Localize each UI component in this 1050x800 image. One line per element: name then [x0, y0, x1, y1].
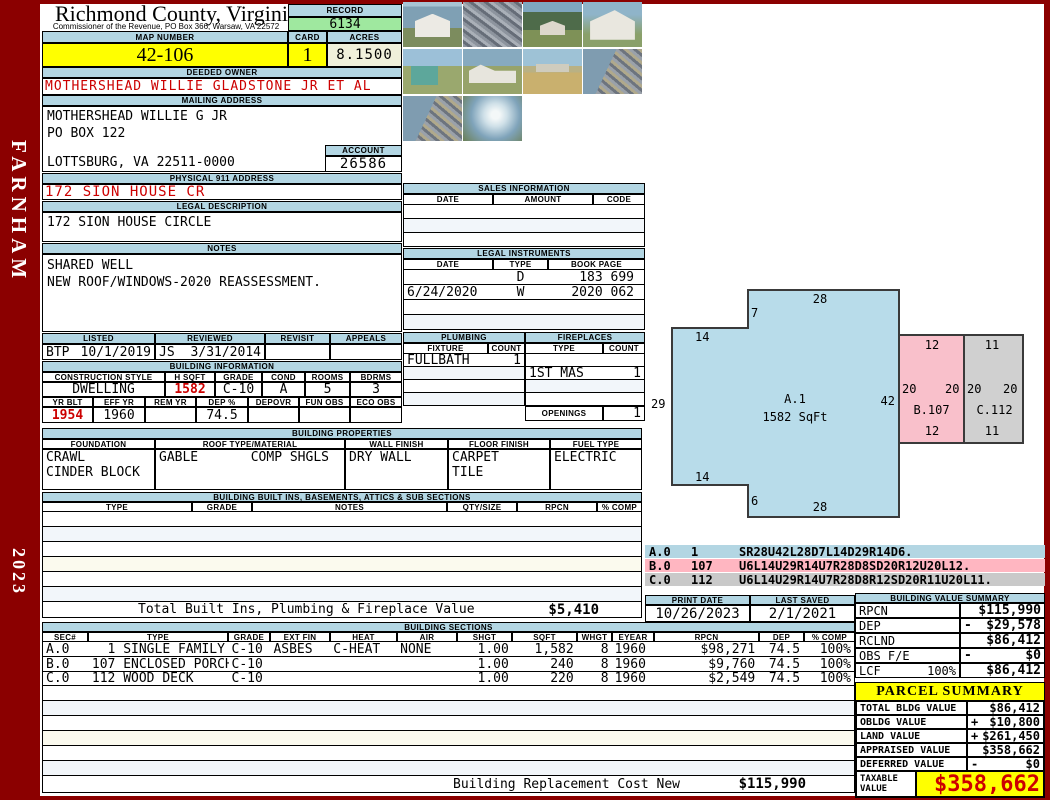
bvs-value: -$29,578 [960, 618, 1045, 633]
li-bookpage: 183 699 [548, 270, 644, 285]
replacement-cost-value: $115,990 [739, 776, 806, 792]
card-value: 1 [288, 43, 327, 67]
built-ins-title: BUILDING BUILT INS, BASEMENTS, ATTICS & … [42, 492, 642, 502]
building-section-row: C.0 112 WOOD DECK C-10 1.00 220 8 1960 $… [42, 672, 855, 686]
bs-rpcn: $98,271 [654, 642, 759, 657]
foundation-line-1: CRAWL [46, 450, 85, 465]
built-ins-total-row: Total Built Ins, Plumbing & Fireplace Va… [42, 602, 642, 618]
listed-header: LISTED [42, 333, 155, 344]
bs-sec-header: SEC# [42, 632, 88, 642]
sales-amount-header: AMOUNT [493, 194, 593, 205]
li-date-header: DATE [403, 259, 493, 270]
building-section-empty-row [42, 701, 855, 716]
notes-box: SHARED WELL NEW ROOF/WINDOWS-2020 REASSE… [42, 254, 402, 332]
code-type: 1 [691, 545, 739, 559]
code-sec: C.0 [649, 573, 691, 587]
photo-thumbnail-white-house-front[interactable] [463, 49, 522, 94]
wall-finish-header: WALL FINISH [345, 439, 448, 449]
sketch-code-row-a: A.0 1 SR28U42L28D7L14D29R14D6. [645, 545, 1045, 558]
sketch-code-row-c: C.0 112 U6L14U29R14U7R28D8R12SD20R11U20L… [645, 573, 1045, 586]
dep-pct-header: DEP % [196, 397, 248, 407]
legal-description-header: LEGAL DESCRIPTION [42, 201, 402, 212]
reviewed-date: 3/31/2014 [191, 345, 261, 360]
bs-shgt: 1.00 [457, 642, 512, 657]
code-sec: A.0 [649, 545, 691, 559]
depovr-value [248, 407, 299, 423]
photo-thumbnail-field-and-house[interactable] [523, 49, 582, 94]
fireplace-row [525, 393, 645, 406]
bs-comp: 100% [803, 672, 854, 686]
built-ins-empty-row [42, 587, 642, 602]
reviewed-by: JS [159, 345, 175, 360]
print-date-value: 10/26/2023 [645, 605, 750, 622]
bvs-amount: $29,578 [986, 618, 1041, 633]
revisit-value [265, 344, 330, 360]
plumbing-row [403, 380, 525, 393]
fireplace-row: 1ST MAS 1 [525, 367, 645, 380]
fireplace-type-header: TYPE [525, 343, 603, 354]
print-date-header: PRINT DATE [645, 595, 750, 605]
built-ins-qty-header: QTY/SIZE [447, 502, 517, 512]
mailing-line-1: MOTHERSHEAD WILLIE G JR [43, 107, 401, 124]
appeals-header: APPEALS [330, 333, 402, 344]
sales-title: SALES INFORMATION [403, 183, 645, 194]
parcel-value: $86,412 [967, 701, 1044, 715]
card-header: CARD [288, 31, 327, 43]
parcel-sign: + [971, 729, 978, 743]
building-properties-header: BUILDING PROPERTIES [42, 428, 642, 439]
notes-line-1: SHARED WELL [43, 255, 401, 273]
dim-a-top: 28 [805, 292, 835, 306]
dim-a-left: 29 [651, 397, 665, 411]
parcel-amount: $0 [1026, 757, 1040, 771]
bs-eyear: 1960 [612, 642, 654, 657]
sketch-c-name: C.112 [967, 403, 1022, 417]
replacement-cost-label: Building Replacement Cost New [453, 777, 680, 792]
dim-a-bottom: 28 [805, 500, 835, 514]
building-sections-title: BUILDING SECTIONS [42, 622, 855, 632]
bs-dep: 74.5 [758, 642, 803, 657]
reviewed-value: JS 3/31/2014 [155, 344, 265, 360]
bs-grade-header: GRADE [228, 632, 270, 642]
parcel-amount: $10,800 [989, 715, 1040, 729]
legal-instruments-header-row: DATE TYPE BOOK PAGE [403, 259, 645, 270]
plumbing-row [403, 367, 525, 380]
bvs-sign: - [964, 648, 972, 663]
bvs-amount: $0 [1025, 648, 1041, 663]
bvs-extra: 100% [927, 664, 956, 678]
code-type: 112 [691, 573, 739, 587]
bs-dep: 74.5 [758, 672, 803, 686]
photo-thumbnail-shoreline-riprap[interactable] [403, 96, 462, 141]
bvs-amount: $86,412 [986, 663, 1041, 678]
li-bookpage: 2020 062 [548, 285, 644, 300]
parcel-summary-title: PARCEL SUMMARY [856, 683, 1044, 701]
floor-finish-value: CARPET TILE [448, 449, 550, 490]
fun-obs-header: FUN OBS [299, 397, 350, 407]
sales-date-header: DATE [403, 194, 493, 205]
fuel-type-header: FUEL TYPE [550, 439, 642, 449]
bvs-label-text: LCF [859, 664, 881, 678]
roof-type: GABLE [159, 450, 198, 465]
fireplace-count-header: COUNT [603, 343, 645, 354]
parcel-value: $358,662 [967, 743, 1044, 757]
building-info-header-row-2: YR BLT EFF YR REM YR DEP % DEPOVR FUN OB… [42, 397, 402, 407]
bs-sqft: 220 [512, 672, 577, 686]
legal-instrument-row: D 183 699 [403, 270, 645, 285]
bs-eyear-header: EYEAR [612, 632, 654, 642]
photo-thumbnail-riprap-pile[interactable] [463, 2, 522, 47]
taxable-value-amount: $358,662 [916, 771, 1044, 797]
li-date: 6/24/2020 [404, 285, 493, 300]
dim-b-top: 12 [917, 338, 947, 352]
rooms-header: ROOMS [305, 372, 350, 382]
dim-a-ext-bottom: 14 [695, 470, 709, 484]
parcel-label: TOTAL BLDG VALUE [856, 701, 967, 715]
plumbing-count-header: COUNT [488, 343, 525, 354]
floor-line-1: CARPET [452, 450, 499, 465]
bs-dep-header: DEP [759, 632, 804, 642]
bs-whgt: 8 [577, 657, 612, 672]
building-info-header-row-1: CONSTRUCTION STYLE H SQFT GRADE COND ROO… [42, 372, 402, 382]
hsqft-header: H SQFT [165, 372, 215, 382]
dim-c-bottom: 11 [977, 424, 1007, 438]
bs-grade: C-10 [229, 642, 271, 657]
plumbing-count: 1 [488, 354, 524, 367]
code-path: U6L14U29R14U7R28D8SD20R12U20L12. [739, 559, 970, 573]
built-ins-empty-row [42, 527, 642, 542]
cond-header: COND [262, 372, 305, 382]
bvs-value: $86,412 [960, 663, 1045, 678]
bvs-label-text: RPCN [859, 604, 888, 618]
built-ins-empty-row [42, 542, 642, 557]
yr-blt-value: 1954 [42, 407, 93, 423]
appeals-value [330, 344, 402, 360]
bs-rpcn-header: RPCN [654, 632, 759, 642]
notes-header: NOTES [42, 243, 402, 254]
bs-whgt: 8 [577, 672, 612, 686]
fixture-header: FIXTURE [403, 343, 488, 354]
bs-shgt: 1.00 [457, 672, 512, 686]
built-ins-notes-header: NOTES [252, 502, 447, 512]
building-section-empty-row [42, 731, 855, 746]
roof-value: GABLE COMP SHGLS [155, 449, 345, 490]
bvs-label: RPCN [855, 603, 960, 618]
plumbing-fixture: FULLBATH [404, 354, 488, 367]
bs-shgt: 1.00 [457, 657, 512, 672]
rooms-value: 5 [305, 382, 350, 397]
li-type-header: TYPE [493, 259, 548, 270]
dim-c-right: 20 [1003, 382, 1017, 396]
record-header: RECORD [288, 4, 402, 17]
built-ins-total-label: Total Built Ins, Plumbing & Fireplace Va… [138, 602, 475, 617]
bs-whgt: 8 [577, 642, 612, 657]
bvs-value: -$0 [960, 648, 1045, 663]
plumbing-title: PLUMBING [403, 332, 525, 343]
listed-value: BTP 10/1/2019 [42, 344, 155, 360]
dep-pct-value: 74.5 [196, 407, 248, 423]
building-sections-header-row: SEC# TYPE GRADE EXT FIN HEAT AIR SHGT SQ… [42, 632, 855, 642]
eco-obs-header: ECO OBS [350, 397, 402, 407]
grade-value: C-10 [215, 382, 262, 397]
parcel-sign: - [971, 757, 978, 771]
bs-rpcn: $2,549 [654, 672, 759, 686]
account-header: ACCOUNT [325, 145, 402, 156]
last-saved-header: LAST SAVED [750, 595, 855, 605]
openings-row: OPENINGS 1 [525, 406, 645, 421]
dim-b-left: 20 [902, 382, 916, 396]
fun-obs-value [299, 407, 350, 423]
legal-instrument-row: 6/24/2020 W 2020 062 [403, 285, 645, 300]
building-section-empty-row [42, 686, 855, 701]
legal-description-value: 172 SION HOUSE CIRCLE [43, 213, 401, 230]
li-type: D [493, 270, 548, 285]
bs-sqft: 240 [512, 657, 577, 672]
li-bookpage-header: BOOK PAGE [548, 259, 645, 270]
parcel-label: LAND VALUE [856, 729, 967, 743]
bs-extfin: ASBES [270, 642, 330, 657]
built-ins-empty-row [42, 512, 642, 527]
replacement-cost-row: Building Replacement Cost New $115,990 [42, 776, 855, 793]
grade-header: GRADE [215, 372, 262, 382]
bvs-value: $86,412 [960, 633, 1045, 648]
wall-finish-value: DRY WALL [345, 449, 448, 490]
dim-c-top: 11 [977, 338, 1007, 352]
photo-thumbnail-white-building-gable[interactable] [583, 2, 642, 47]
review-value-row: BTP 10/1/2019 JS 3/31/2014 [42, 344, 402, 360]
sales-empty-row [403, 233, 645, 247]
built-ins-type-header: TYPE [42, 502, 192, 512]
dim-b-right: 20 [945, 382, 959, 396]
bs-sqft: 1,582 [512, 642, 577, 657]
photo-thumbnail-teal-shed[interactable] [403, 49, 462, 94]
physical-address-header: PHYSICAL 911 ADDRESS [42, 173, 402, 184]
bvs-amount: $115,990 [978, 603, 1041, 618]
notes-line-2: NEW ROOF/WINDOWS-2020 REASSESSMENT. [43, 273, 401, 290]
building-information-header: BUILDING INFORMATION [42, 361, 402, 372]
bs-eyear: 1960 [612, 657, 654, 672]
bvs-label: RCLND [855, 633, 960, 648]
bdrms-value: 3 [350, 382, 402, 397]
sketch-a-sqft: 1582 SqFt [745, 410, 845, 424]
built-ins-grade-header: GRADE [192, 502, 252, 512]
bs-type-header: TYPE [88, 632, 228, 642]
parcel-value: +$261,450 [967, 729, 1044, 743]
print-info-value-row: 10/26/2023 2/1/2021 [645, 605, 855, 622]
roof-material: COMP SHGLS [251, 450, 329, 465]
building-section-empty-row [42, 746, 855, 761]
sales-header-row: DATE AMOUNT CODE [403, 194, 645, 205]
building-info-value-row-1: DWELLING 1582 C-10 A 5 3 [42, 382, 402, 397]
legal-description-box: 172 SION HOUSE CIRCLE [42, 212, 402, 242]
sales-code-header: CODE [593, 194, 645, 205]
physical-address-value: 172 SION HOUSE CR [42, 184, 402, 200]
deeded-owner-header: DEEDED OWNER [42, 67, 402, 78]
legal-instrument-row [403, 315, 645, 330]
roof-header: ROOF TYPE/MATERIAL [155, 439, 345, 449]
sketch-a-name: A.1 [765, 392, 825, 406]
fuel-type-value: ELECTRIC [550, 449, 642, 490]
fireplace-row [525, 354, 645, 367]
map-number-value: 42-106 [42, 43, 288, 67]
plumbing-row [403, 393, 525, 406]
building-section-row: A.0 1 SINGLE FAMILY C-10 ASBES C-HEAT NO… [42, 642, 855, 657]
floor-line-2: TILE [452, 465, 483, 480]
bvs-label: OBS F/E [855, 648, 960, 663]
last-saved-value: 2/1/2021 [750, 605, 855, 622]
fireplaces-title: FIREPLACES [525, 332, 645, 343]
sales-empty-row [403, 219, 645, 233]
property-record-card: { "frame": {"district": "FARNHAM", "year… [0, 0, 1050, 800]
sales-empty-row [403, 205, 645, 219]
rem-yr-value [145, 407, 196, 423]
building-info-value-row-2: 1954 1960 74.5 [42, 407, 402, 423]
bs-type: 107 ENCLOSED PORCH [89, 657, 229, 672]
district-label: FARNHAM [6, 140, 31, 350]
built-ins-total-value: $5,410 [548, 602, 599, 618]
bs-extfin-header: EXT FIN [270, 632, 330, 642]
photo-grid [403, 2, 645, 141]
foundation-header: FOUNDATION [42, 439, 155, 449]
bs-heat: C-HEAT [330, 642, 397, 657]
bs-comp-header: % COMP [804, 632, 855, 642]
plumbing-row: FULLBATH 1 [403, 354, 525, 367]
code-type: 107 [691, 559, 739, 573]
listed-by: BTP [46, 345, 69, 360]
legal-instruments-title: LEGAL INSTRUMENTS [403, 248, 645, 259]
bs-heat-header: HEAT [330, 632, 397, 642]
yr-blt-header: YR BLT [42, 397, 93, 407]
sketch-b-name: B.107 [903, 403, 960, 417]
county-subtitle: Commissioner of the Revenue, PO Box 366,… [44, 22, 288, 31]
bdrms-header: BDRMS [350, 372, 402, 382]
bvs-amount: $86,412 [986, 633, 1041, 648]
openings-value: 1 [603, 406, 645, 421]
bvs-label: DEP [855, 618, 960, 633]
photo-thumbnail-waterfront-dock[interactable] [463, 96, 522, 141]
bs-sec: B.0 [43, 657, 89, 672]
mailing-line-2: PO BOX 122 [43, 124, 401, 141]
bs-shgt-header: SHGT [457, 632, 512, 642]
bs-whgt-header: WHGT [577, 632, 612, 642]
bvs-sign: - [964, 618, 972, 633]
building-properties-header-row: FOUNDATION ROOF TYPE/MATERIAL WALL FINIS… [42, 439, 642, 449]
photo-thumbnail-shoreline-riprap[interactable] [583, 49, 642, 94]
cond-value: A [262, 382, 305, 397]
parcel-amount: $358,662 [982, 743, 1040, 757]
parcel-sign: + [971, 715, 978, 729]
dim-a-notch-bottom: 6 [751, 494, 758, 508]
parcel-amount: $86,412 [989, 701, 1040, 715]
built-ins-comp-header: % COMP [597, 502, 642, 512]
fireplace-count: 1 [603, 367, 644, 380]
bvs-title: BUILDING VALUE SUMMARY [855, 593, 1045, 603]
year-label: 2023 [8, 548, 29, 638]
building-section-empty-row [42, 761, 855, 776]
bs-eyear: 1960 [612, 672, 654, 686]
parcel-amount: $261,450 [982, 729, 1040, 743]
dim-c-left: 20 [967, 382, 981, 396]
bs-rpcn: $9,760 [654, 657, 759, 672]
built-ins-header-row: TYPE GRADE NOTES QTY/SIZE RPCN % COMP [42, 502, 642, 512]
construction-style-value: DWELLING [42, 382, 165, 397]
building-value-summary: BUILDING VALUE SUMMARY RPCN $115,990 DEP… [855, 593, 1045, 678]
bvs-label-text: OBS F/E [859, 649, 910, 663]
map-number-header: MAP NUMBER [42, 31, 288, 43]
dim-b-bottom: 12 [917, 424, 947, 438]
revisit-header: REVISIT [265, 333, 330, 344]
parcel-label: DEFERRED VALUE [856, 757, 967, 771]
review-header-row: LISTED REVIEWED REVISIT APPEALS [42, 333, 402, 344]
dim-a-right: 42 [871, 394, 895, 408]
eff-yr-header: EFF YR [93, 397, 145, 407]
fireplace-row [525, 380, 645, 393]
built-ins-empty-row [42, 557, 642, 572]
construction-style-header: CONSTRUCTION STYLE [42, 372, 165, 382]
built-ins-empty-row [42, 572, 642, 587]
depovr-header: DEPOVR [248, 397, 299, 407]
listed-date: 10/1/2019 [81, 345, 151, 360]
reviewed-header: REVIEWED [155, 333, 265, 344]
code-path: SR28U42L28D7L14D29R14D6. [739, 545, 912, 559]
photo-thumbnail-white-garage[interactable] [403, 2, 462, 47]
rem-yr-header: REM YR [145, 397, 196, 407]
bs-air: NONE [397, 642, 457, 657]
floor-finish-header: FLOOR FINISH [448, 439, 550, 449]
parcel-value: -$0 [967, 757, 1044, 771]
eff-yr-value: 1960 [93, 407, 145, 423]
parcel-value: +$10,800 [967, 715, 1044, 729]
bs-sec: C.0 [43, 672, 89, 686]
bs-type: 112 WOOD DECK [89, 672, 229, 686]
code-path: U6L14U29R14U7R28D8R12SD20R11U20L11. [739, 573, 992, 587]
acres-value: 8.1500 [327, 43, 402, 67]
bs-type: 1 SINGLE FAMILY [89, 642, 229, 657]
bvs-label-text: RCLND [859, 634, 895, 648]
taxable-value-label: TAXABLE VALUE [856, 771, 916, 797]
dim-a-notch-top: 7 [751, 306, 758, 320]
code-sec: B.0 [649, 559, 691, 573]
building-sketch: 28 7 14 29 A.1 1582 SqFt 42 14 6 28 12 2… [645, 282, 1045, 540]
building-section-row: B.0 107 ENCLOSED PORCH C-10 1.00 240 8 1… [42, 657, 855, 672]
bvs-value: $115,990 [960, 603, 1045, 618]
bs-grade: C-10 [229, 657, 271, 672]
account-value: 26586 [325, 156, 402, 172]
bs-sec: A.0 [43, 642, 89, 657]
bvs-label: LCF100% [855, 663, 960, 678]
bs-comp: 100% [803, 642, 854, 657]
parcel-label: OBLDG VALUE [856, 715, 967, 729]
deeded-owner-value: MOTHERSHEAD WILLIE GLADSTONE JR ET AL [42, 78, 402, 95]
dim-a-ext-top: 14 [695, 330, 709, 344]
photo-thumbnail-house-with-trees[interactable] [523, 2, 582, 47]
parcel-summary: PARCEL SUMMARY TOTAL BLDG VALUE $86,412 … [855, 682, 1045, 798]
acres-header: ACRES [327, 31, 402, 43]
foundation-line-2: CINDER BLOCK [46, 465, 140, 480]
bs-air-header: AIR [397, 632, 457, 642]
mailing-address-header: MAILING ADDRESS [42, 95, 402, 106]
bs-dep: 74.5 [758, 657, 803, 672]
legal-instrument-row [403, 300, 645, 315]
bs-grade: C-10 [229, 672, 271, 686]
sketch-code-row-b: B.0 107 U6L14U29R14U7R28D8SD20R12U20L12. [645, 559, 1045, 572]
bvs-label-text: DEP [859, 619, 881, 633]
li-type: W [493, 285, 548, 300]
built-ins-rpcn-header: RPCN [517, 502, 597, 512]
bs-comp: 100% [803, 657, 854, 672]
building-properties-value-row: CRAWL CINDER BLOCK GABLE COMP SHGLS DRY … [42, 449, 642, 490]
foundation-value: CRAWL CINDER BLOCK [42, 449, 155, 490]
